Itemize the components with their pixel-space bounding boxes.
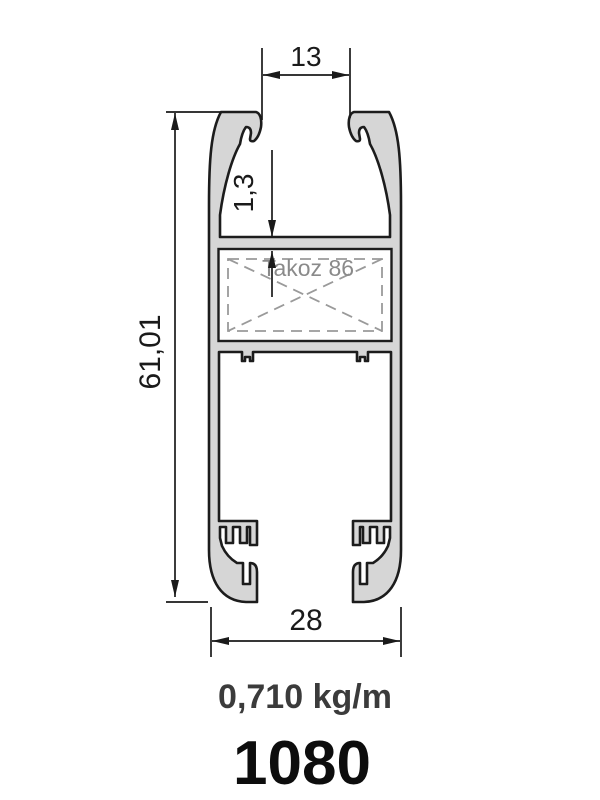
weight-per-meter-label: 0,710 kg/m (218, 678, 392, 716)
profile-drawing-svg: Takoz 86 13 1,3 61,01 28 0,710 kg/m 1080 (0, 0, 600, 800)
technical-drawing-page: Takoz 86 13 1,3 61,01 28 0,710 kg/m 1080 (0, 0, 600, 800)
dimension-top-slot-width: 13 (262, 41, 350, 120)
part-number-label: 1080 (233, 729, 371, 798)
arrow-right-icon (383, 637, 400, 645)
arrow-down-icon (171, 580, 179, 597)
arrow-left-icon (263, 71, 280, 79)
arrow-left-icon (212, 637, 229, 645)
arrow-right-icon (332, 71, 349, 79)
dimension-overall-height: 61,01 (134, 112, 220, 602)
arrow-down-icon (268, 220, 276, 237)
dim-text-overall-width: 28 (289, 604, 322, 637)
arrow-up-icon (171, 113, 179, 130)
dim-text-overall-height: 61,01 (134, 314, 167, 389)
dimension-overall-width: 28 (211, 604, 401, 657)
dim-text-top-slot: 13 (290, 41, 321, 72)
dim-text-wall-thickness: 1,3 (228, 174, 259, 213)
